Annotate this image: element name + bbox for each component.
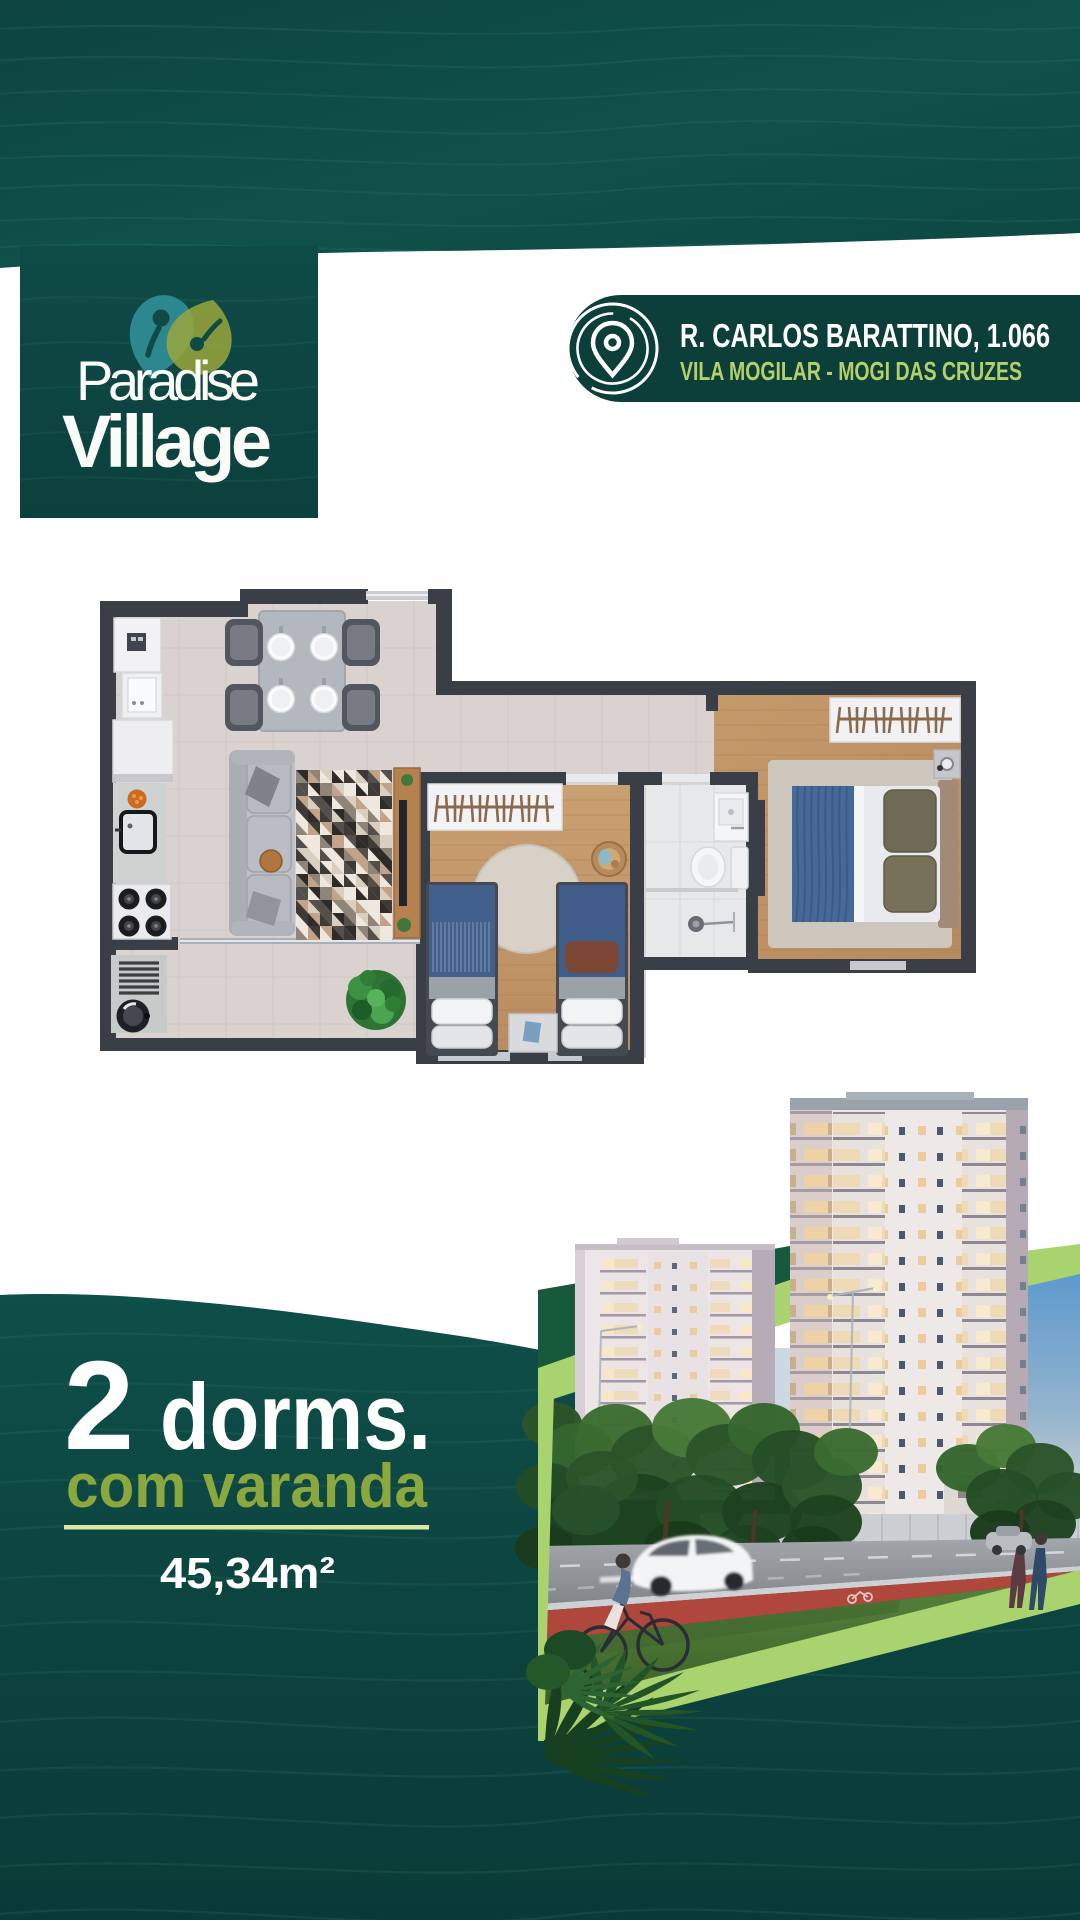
svg-text:com varanda: com varanda — [66, 1452, 427, 1521]
svg-text:45,34m²: 45,34m² — [160, 1549, 335, 1598]
svg-text:VILA MOGILAR - MOGI DAS CRUZES: VILA MOGILAR - MOGI DAS CRUZES — [680, 356, 1022, 386]
svg-text:R. CARLOS BARATTINO, 1.066: R. CARLOS BARATTINO, 1.066 — [680, 317, 1050, 354]
svg-text:Village: Village — [62, 400, 272, 483]
